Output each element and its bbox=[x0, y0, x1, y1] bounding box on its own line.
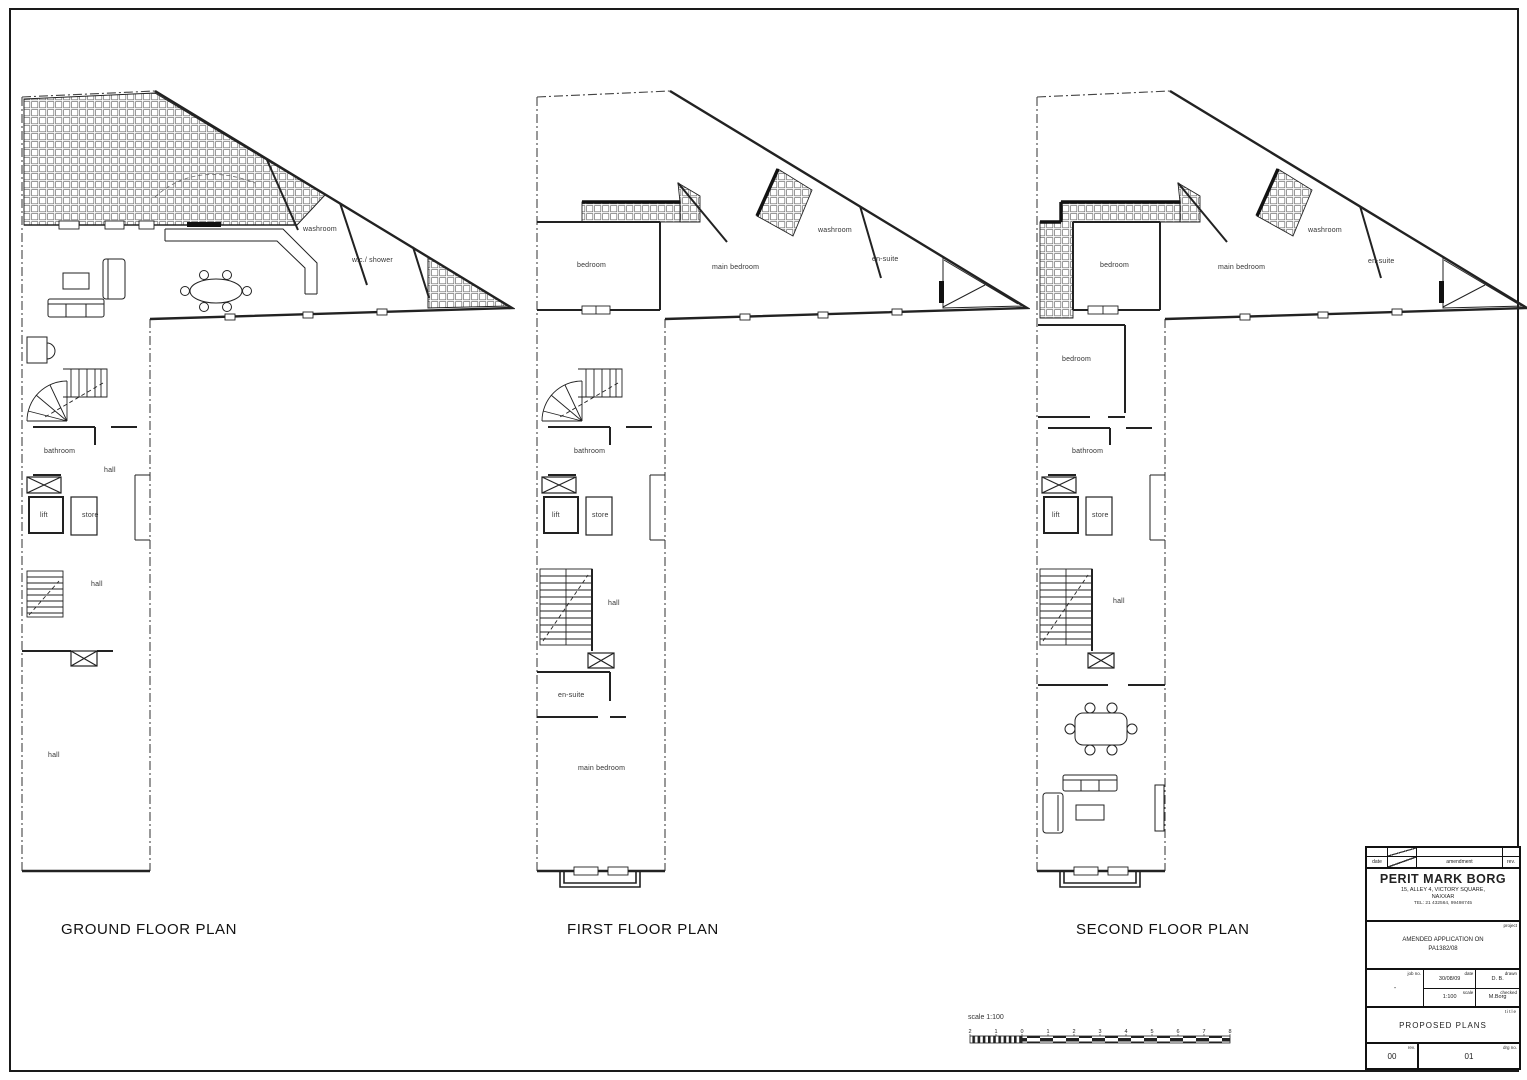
room-label-main-bedroom: main bedroom bbox=[1218, 264, 1265, 271]
lift-cabin bbox=[1044, 497, 1078, 533]
fields-block: job no. - date 30/08/09 drawn D. B. bbox=[1367, 970, 1519, 1008]
lift-shaft bbox=[27, 477, 61, 493]
header-cell bbox=[1503, 848, 1519, 856]
header-cell bbox=[1417, 848, 1503, 856]
party-wall-jog bbox=[1150, 475, 1165, 540]
scale-cell: scale 1:100 bbox=[1424, 989, 1476, 1007]
checked-cell: checked M.Borg bbox=[1476, 989, 1519, 1007]
date-value: 30/08/09 bbox=[1439, 976, 1460, 982]
room-label-ensuite: en-suite bbox=[872, 256, 899, 263]
first-floor-plan-drawing bbox=[530, 85, 1030, 930]
dining-table bbox=[1065, 703, 1137, 755]
room-label-washroom: washroom bbox=[303, 226, 337, 233]
drawn-cell: drawn D. B. bbox=[1476, 970, 1519, 988]
spiral-stair bbox=[27, 369, 107, 421]
bedroom2-walls bbox=[1038, 325, 1125, 417]
shaft-box bbox=[1088, 653, 1114, 668]
architect-block: PERIT MARK BORG 15, ALLEY 4, VICTORY SQU… bbox=[1367, 869, 1519, 922]
sofa-set bbox=[1043, 775, 1164, 833]
date-label: date bbox=[1465, 971, 1474, 976]
room-label-hall: hall bbox=[608, 600, 620, 607]
terrace-hatch2 bbox=[678, 183, 700, 222]
first-floor-title: FIRST FLOOR PLAN bbox=[567, 921, 719, 938]
terrace-hatch-mid bbox=[757, 169, 812, 236]
terrace-hatch2 bbox=[1178, 183, 1200, 222]
room-label-hall: hall bbox=[48, 752, 60, 759]
signature-diagonal-cell bbox=[1388, 857, 1417, 867]
windows bbox=[59, 221, 154, 229]
drawing-sheet: washroom w.c./ shower bathroom hall lift… bbox=[0, 0, 1527, 1080]
architect-town: NAXXAR bbox=[1367, 894, 1519, 900]
footer-block: rev. 00 drg no. 01 bbox=[1367, 1044, 1519, 1068]
project-block: project AMENDED APPLICATION ON PA1382/08 bbox=[1367, 922, 1519, 970]
room-label-main-bedroom: main bedroom bbox=[712, 264, 759, 271]
room-label-hall: hall bbox=[1113, 598, 1125, 605]
drg-no-value: 01 bbox=[1465, 1052, 1474, 1061]
room-label-bedroom: bedroom bbox=[577, 262, 606, 269]
room-label-store: store bbox=[592, 512, 609, 519]
header-diagonal-cell bbox=[1388, 848, 1417, 856]
amendment-header: amendment bbox=[1417, 857, 1503, 867]
drg-no-cell: drg no. 01 bbox=[1419, 1044, 1519, 1068]
facade-piers bbox=[740, 309, 902, 320]
architect-tel: TEL: 21 432564, 99498745 bbox=[1367, 901, 1519, 906]
room-label-wc-shower: w.c./ shower bbox=[352, 257, 393, 264]
lift-cabin bbox=[544, 497, 578, 533]
spiral-stair bbox=[542, 369, 622, 421]
rev-label: rev. bbox=[1408, 1045, 1415, 1050]
ground-floor-plan-drawing bbox=[15, 85, 515, 930]
job-no-label: job no. bbox=[1407, 971, 1421, 976]
scale-label: scale bbox=[1463, 990, 1474, 995]
drawing-title: PROPOSED PLANS bbox=[1399, 1021, 1487, 1030]
architect-name: PERIT MARK BORG bbox=[1367, 872, 1519, 886]
project-line2: PA1382/08 bbox=[1367, 945, 1519, 954]
checked-label: checked bbox=[1500, 990, 1517, 995]
drawn-value: D. B. bbox=[1492, 976, 1504, 982]
checked-value: M.Borg bbox=[1489, 994, 1507, 1000]
terrace-hatch-mid bbox=[1257, 169, 1312, 236]
room-label-ensuite: en-suite bbox=[558, 692, 585, 699]
facade-piers bbox=[1240, 309, 1402, 320]
project-line1: AMENDED APPLICATION ON bbox=[1367, 936, 1519, 945]
room-label-washroom: washroom bbox=[818, 227, 852, 234]
titleblock-header-row2: date amendment rev. bbox=[1367, 857, 1519, 869]
room-label-lift: lift bbox=[40, 512, 48, 519]
architect-address: 15, ALLEY 4, VICTORY SQUARE, bbox=[1367, 887, 1519, 893]
facade-piers bbox=[225, 309, 387, 320]
shaft-box bbox=[71, 651, 97, 666]
second-floor-plan-drawing bbox=[1030, 85, 1527, 930]
room-label-lift: lift bbox=[1052, 512, 1060, 519]
solid-wall-segment bbox=[187, 222, 221, 227]
scale-bar: 2 1 0 1 2 3 4 5 6 7 8 bbox=[962, 1024, 1252, 1050]
title-block: date amendment rev. PERIT MARK BORG 15, … bbox=[1365, 846, 1521, 1070]
stair-lower bbox=[27, 571, 63, 617]
header-cell bbox=[1367, 848, 1388, 856]
yard-hatch bbox=[24, 93, 325, 225]
sofa-set bbox=[27, 259, 125, 363]
ground-floor-title: GROUND FLOOR PLAN bbox=[61, 921, 237, 938]
room-label-hall: hall bbox=[104, 467, 116, 474]
drg-no-label: drg no. bbox=[1503, 1045, 1517, 1050]
fields-grid: date 30/08/09 drawn D. B. scale 1:100 ch… bbox=[1424, 970, 1519, 1006]
project-label: project bbox=[1503, 923, 1517, 930]
dining-table bbox=[181, 271, 252, 312]
room-label-bathroom: bathroom bbox=[574, 448, 605, 455]
date-cell: date 30/08/09 bbox=[1424, 970, 1476, 988]
room-label-bedroom: bedroom bbox=[1062, 356, 1091, 363]
room-label-bedroom: bedroom bbox=[1100, 262, 1129, 269]
scale-bar-label: scale 1:100 bbox=[968, 1014, 1004, 1021]
wall-jamb bbox=[939, 281, 944, 303]
rev-value: 00 bbox=[1388, 1052, 1397, 1061]
titleblock-header-row1 bbox=[1367, 848, 1519, 857]
drawing-title-block: title PROPOSED PLANS bbox=[1367, 1008, 1519, 1044]
second-floor-title: SECOND FLOOR PLAN bbox=[1076, 921, 1250, 938]
date-header: date bbox=[1367, 857, 1388, 867]
room-label-ensuite: en-suite bbox=[1368, 258, 1395, 265]
scale-value: 1:100 bbox=[1443, 994, 1457, 1000]
kitchen-counter bbox=[165, 229, 317, 294]
lift-shaft bbox=[1042, 477, 1076, 493]
main-stair bbox=[1040, 569, 1092, 645]
lift-shaft bbox=[542, 477, 576, 493]
shaft-box bbox=[588, 653, 614, 668]
title-label: title bbox=[1505, 1009, 1517, 1014]
party-wall-jog bbox=[650, 475, 665, 540]
room-label-bathroom: bathroom bbox=[44, 448, 75, 455]
terrace-hatch bbox=[582, 202, 680, 222]
room-label-washroom: washroom bbox=[1308, 227, 1342, 234]
room-label-main-bedroom: main bedroom bbox=[578, 765, 625, 772]
rev-header: rev. bbox=[1503, 857, 1519, 867]
rev-cell: rev. 00 bbox=[1367, 1044, 1419, 1068]
room-label-lift: lift bbox=[552, 512, 560, 519]
room-label-bathroom: bathroom bbox=[1072, 448, 1103, 455]
main-stair bbox=[540, 569, 592, 645]
room-label-store: store bbox=[82, 512, 99, 519]
drawn-label: drawn bbox=[1505, 971, 1517, 976]
room-label-store: store bbox=[1092, 512, 1109, 519]
room-label-hall: hall bbox=[91, 581, 103, 588]
job-no-cell: job no. - bbox=[1367, 970, 1424, 1006]
wall-jamb bbox=[1439, 281, 1444, 303]
job-no-value: - bbox=[1394, 985, 1396, 992]
party-wall-jog bbox=[135, 475, 150, 540]
